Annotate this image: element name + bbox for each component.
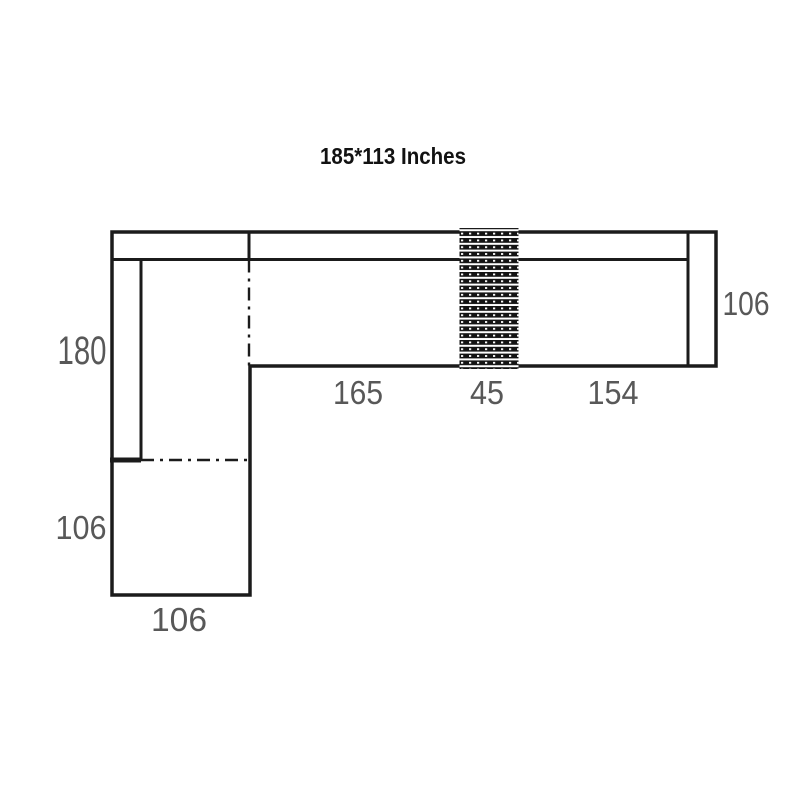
dim-label-seat-right: 154 bbox=[588, 374, 639, 411]
sofa-dimension-diagram: 185*113 Inches 180 106 106 165 45 154 10… bbox=[0, 0, 800, 800]
dim-label-bottom-width: 106 bbox=[151, 601, 207, 638]
dim-label-right-depth: 106 bbox=[723, 285, 770, 322]
console-hatch-texture bbox=[460, 228, 519, 369]
dim-label-seat-left: 165 bbox=[333, 374, 383, 411]
dim-label-left-lower-depth: 106 bbox=[56, 509, 107, 546]
sofa-outline bbox=[112, 232, 716, 595]
diagram-canvas: 185*113 Inches 180 106 106 165 45 154 10… bbox=[0, 0, 800, 800]
dim-label-left-length: 180 bbox=[58, 329, 107, 373]
diagram-title: 185*113 Inches bbox=[320, 143, 466, 169]
dim-label-console: 45 bbox=[470, 374, 504, 411]
